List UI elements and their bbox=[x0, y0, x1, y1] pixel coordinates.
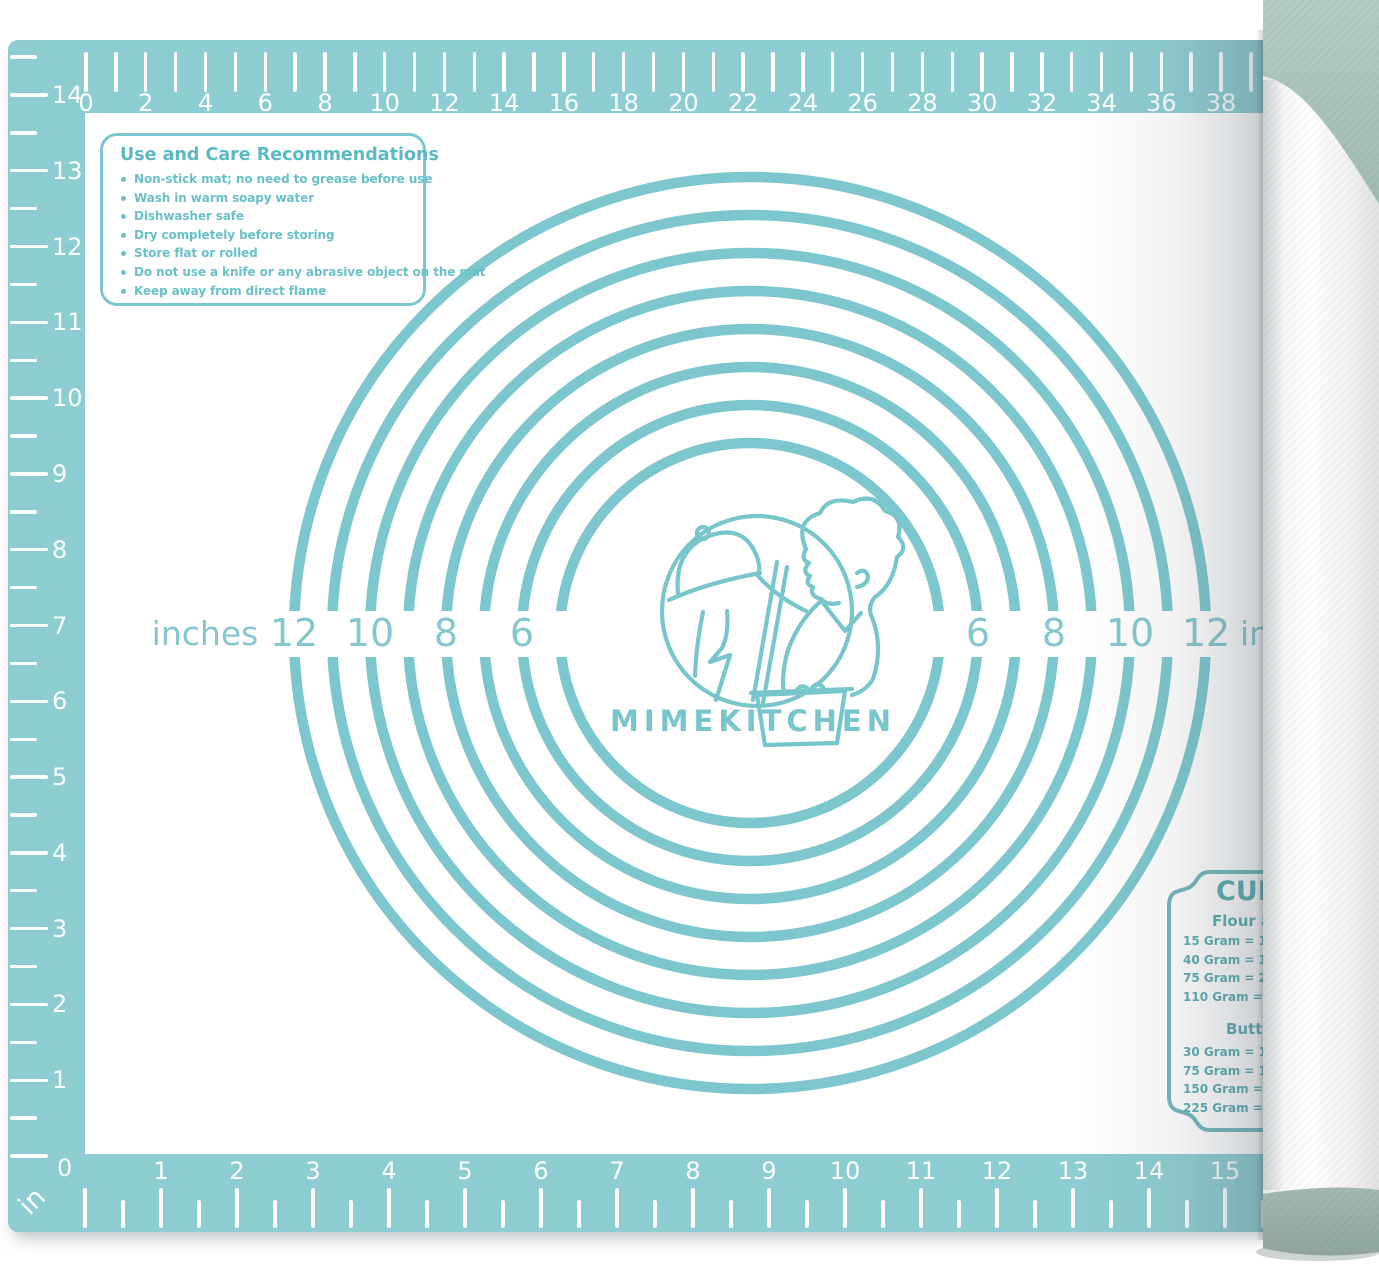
care-instruction-item: Keep away from direct flame bbox=[119, 282, 485, 301]
baking-mat-product-photo: 02468101214161820222426283032343638 1413… bbox=[0, 0, 1379, 1267]
care-instruction-item: Wash in warm soapy water bbox=[119, 189, 485, 208]
care-instruction-item: Non-stick mat; no need to grease before … bbox=[119, 170, 485, 189]
care-instruction-item: Dishwasher safe bbox=[119, 207, 485, 226]
care-instructions-list: Non-stick mat; no need to grease before … bbox=[119, 170, 485, 300]
ruler-corner-zero-label: 0 bbox=[57, 1154, 83, 1182]
care-instruction-item: Store flat or rolled bbox=[119, 244, 485, 263]
roll-bottom-cap-texture bbox=[1263, 1187, 1379, 1255]
care-instructions-panel: Use and Care Recommendations Non-stick m… bbox=[100, 133, 426, 306]
care-panel-title: Use and Care Recommendations bbox=[120, 145, 439, 165]
care-instruction-item: Dry completely before storing bbox=[119, 226, 485, 245]
roll-inner-shade bbox=[1263, 80, 1285, 1190]
care-instruction-item: Do not use a knife or any abrasive objec… bbox=[119, 263, 485, 282]
rolled-mat-edge bbox=[1252, 0, 1379, 1267]
